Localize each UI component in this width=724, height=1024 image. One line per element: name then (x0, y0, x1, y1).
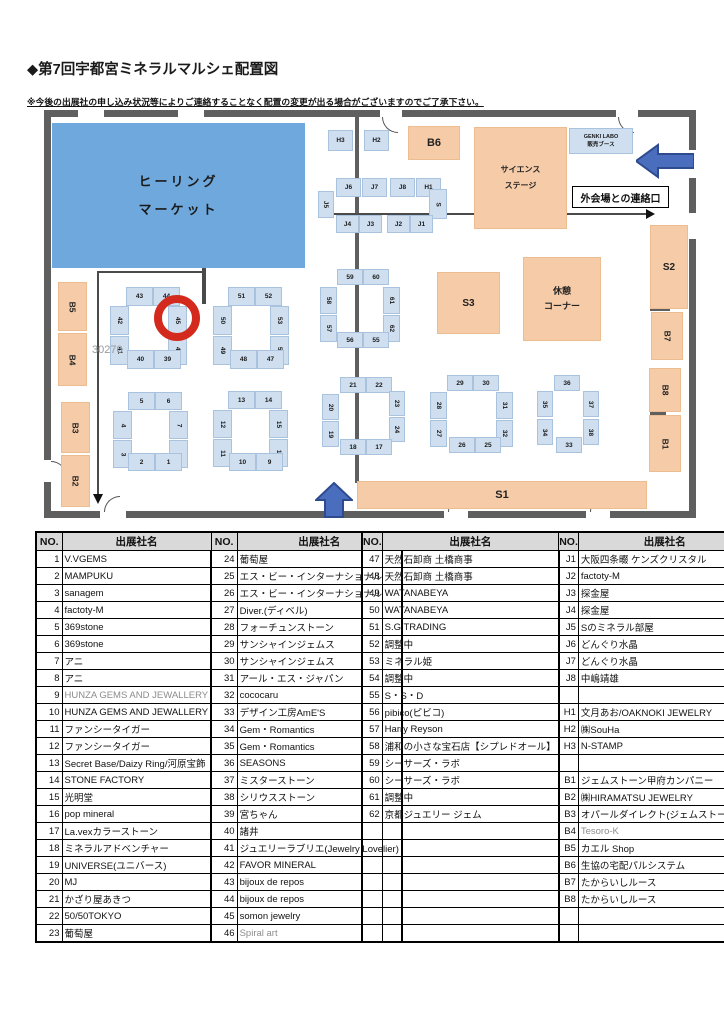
table-row: B7たからいしルース (362, 874, 724, 891)
exhibitor-name: 369stone (62, 619, 211, 636)
wall-center (355, 110, 359, 483)
exhibitor-no: B6 (559, 857, 579, 874)
booth-label: 56 (346, 337, 353, 344)
exhibitor-no: 47 (362, 551, 382, 568)
booth-label: 28 (435, 402, 442, 409)
booth-label: 57 (325, 325, 332, 332)
booth-2: 2 (128, 453, 155, 471)
exhibitor-no (362, 874, 382, 891)
exhibitor-no (362, 840, 382, 857)
exhibitor-name (382, 908, 559, 925)
booth-37: 37 (583, 391, 599, 417)
exhibitor-name: たからいしルース (578, 874, 724, 891)
exhibitor-name (382, 874, 559, 891)
exhibitor-name: 文月あお/OAKNOKI JEWELRY (578, 704, 724, 721)
table-row: 54調整中J8中嶋靖雄 (362, 670, 724, 687)
booth-label: 37 (587, 400, 594, 407)
table-row: 51S.G TRADINGJ5Sのミネラル部屋 (362, 619, 724, 636)
booth-61: 61 (383, 287, 400, 314)
exhibitor-name: ミネラル姫 (382, 653, 559, 670)
booth-label: 52 (265, 293, 272, 300)
booth-36: 36 (554, 375, 580, 391)
booth-48: 48 (230, 350, 257, 369)
exhibitor-no: 28 (211, 619, 237, 636)
booth-label: 39 (164, 356, 171, 363)
exhibitor-name: 中嶋靖雄 (578, 670, 724, 687)
wall-stub (202, 268, 206, 304)
booth-label: 29 (456, 380, 463, 387)
area-label: B2 (71, 476, 81, 487)
exhibitor-name: STONE FACTORY (62, 772, 211, 789)
booth-label: 15 (275, 420, 282, 427)
table-row (362, 908, 724, 925)
exhibitor-no: 19 (36, 857, 62, 874)
exhibitor-no: 52 (362, 636, 382, 653)
table-row: 11ファンシータイガー34Gem・Romantics (36, 721, 402, 738)
exhibitor-no: 37 (211, 772, 237, 789)
booth-label: 61 (388, 297, 395, 304)
exhibitor-no: J4 (559, 602, 579, 619)
wall-top (44, 110, 695, 117)
booth-34: 34 (537, 419, 553, 445)
booth-9: 9 (256, 453, 283, 471)
booth-label: J8 (399, 184, 406, 191)
booth-6: 6 (155, 392, 182, 410)
exhibitor-no: 2 (36, 568, 62, 585)
booth-label: H3 (336, 137, 344, 144)
exhibitor-no: 42 (211, 857, 237, 874)
exhibitor-name: オパールダイレクト(ジェムストーリー) (578, 806, 724, 823)
entrance-arrow-up-icon (315, 482, 353, 518)
exhibitor-name: 369stone (62, 636, 211, 653)
exhibitor-no (559, 687, 579, 704)
exhibitor-no: 61 (362, 789, 382, 806)
rest-corner: 休憩 コーナー (523, 257, 601, 341)
exhibitor-no: 9 (36, 687, 62, 704)
booth-label: J4 (344, 221, 351, 228)
exhibitor-name: WATANABEYA (382, 602, 559, 619)
booth-J4: J4 (336, 215, 359, 233)
exhibitor-name (382, 857, 559, 874)
booth-label: 60 (372, 274, 379, 281)
exhibitor-no: 6 (36, 636, 62, 653)
exhibitor-no: 46 (211, 925, 237, 943)
exhibitor-name (578, 925, 724, 943)
booth-1: 1 (155, 453, 182, 471)
table-row: 57Harry ReysonH2㈱SouHa (362, 721, 724, 738)
booth-label: 50 (219, 317, 226, 324)
flyer-page: ◆第7回宇都宮ミネラルマルシェ配置図 ※今後の出展社の申し込み状況等によりご連絡… (0, 0, 724, 1024)
exhibitor-no: B4 (559, 823, 579, 840)
exhibitor-no: H3 (559, 738, 579, 755)
exhibitor-name: sanagem (62, 585, 211, 602)
booth-H2: H2 (364, 130, 389, 151)
booth-47: 47 (257, 350, 284, 369)
booth-label: J6 (345, 184, 352, 191)
table-row: 16pop mineral39宮ちゃん (36, 806, 402, 823)
booth-label: 33 (565, 442, 572, 449)
table-row: 1V.VGEMS24葡萄屋 (36, 551, 402, 568)
booth-35: 35 (537, 391, 553, 417)
exhibitor-name: 調整中 (382, 670, 559, 687)
booth-4: 4 (113, 411, 132, 439)
table-row: 3sanagem26エス・ビー・インターナショナル (36, 585, 402, 602)
area-label: サイエンス ステージ (501, 162, 541, 194)
booth-19: 19 (322, 421, 339, 447)
exhibitor-no: J3 (559, 585, 579, 602)
area-B5: B5 (58, 282, 87, 331)
booth-label: 21 (349, 382, 356, 389)
table-row: 60シーサーズ・ラボB1ジェムストーン甲府カンパニー (362, 772, 724, 789)
exhibitor-name (382, 840, 559, 857)
booth-27: 27 (430, 420, 447, 447)
exhibitor-no: J1 (559, 551, 579, 568)
exit-connector-label: 外会場との連絡口 (572, 186, 669, 208)
booth-label: 34 (541, 428, 548, 435)
area-B1: B1 (649, 415, 681, 472)
exhibitor-name: ㈱HIRAMATSU JEWELRY (578, 789, 724, 806)
exhibitor-no: 18 (36, 840, 62, 857)
booth-10: 10 (229, 453, 256, 471)
col-header-no: NO. (559, 532, 579, 551)
exhibitor-no: 59 (362, 755, 382, 772)
booth-13: 13 (228, 391, 255, 409)
exhibitor-no: 25 (211, 568, 237, 585)
booth-label: 2 (140, 459, 144, 466)
exhibitor-name (382, 891, 559, 908)
booth-label: 47 (267, 356, 274, 363)
area-B3: B3 (61, 402, 90, 453)
exhibitor-name: Tesoro-K (578, 823, 724, 840)
exhibitor-name (578, 908, 724, 925)
exhibitor-name: ファンシータイガー (62, 721, 211, 738)
table-row: 52調整中J6どんぐり水晶 (362, 636, 724, 653)
booth-42: 42 (110, 306, 129, 335)
table-row: 53ミネラル姫J7どんぐり水晶 (362, 653, 724, 670)
booth-18: 18 (340, 439, 366, 455)
exhibitor-no (362, 823, 382, 840)
booth-28: 28 (430, 392, 447, 419)
exhibitor-name: N-STAMP (578, 738, 724, 755)
exhibitor-name: Secret Base/Daizy Ring/河原宝飾 (62, 755, 211, 772)
booth-31: 31 (496, 392, 513, 419)
table-row: B6生協の宅配パルシステム (362, 857, 724, 874)
booth-59: 59 (337, 269, 363, 285)
booth-60: 60 (363, 269, 389, 285)
booth-21: 21 (340, 377, 366, 393)
exhibitor-name: La.vexカラーストーン (62, 823, 211, 840)
booth-label: 58 (325, 297, 332, 304)
booth-J5: J5 (318, 191, 334, 218)
table-row: B5カエル Shop (362, 840, 724, 857)
exhibitor-no: 32 (211, 687, 237, 704)
booth-43: 43 (126, 287, 153, 306)
booth-52: 52 (255, 287, 282, 306)
area-S3: S3 (437, 272, 500, 334)
area-B4: B4 (58, 333, 87, 386)
booth-26: 26 (449, 437, 475, 453)
col-header-no: NO. (362, 532, 382, 551)
exhibitor-no: 16 (36, 806, 62, 823)
area-B2: B2 (61, 455, 90, 507)
booth-label: 36 (563, 380, 570, 387)
booth-51: 51 (228, 287, 255, 306)
booth-label: 53 (276, 317, 283, 324)
exhibitor-no: 57 (362, 721, 382, 738)
exhibitor-no: B2 (559, 789, 579, 806)
booth-53: 53 (270, 306, 289, 335)
area-B8: B8 (649, 368, 681, 412)
booth-label: 42 (116, 317, 123, 324)
booth-23: 23 (389, 391, 405, 416)
table-row: 61調整中B2㈱HIRAMATSU JEWELRY (362, 789, 724, 806)
exhibitor-name: pibico(ピビコ) (382, 704, 559, 721)
exhibitor-name: factoty-M (578, 568, 724, 585)
booth-J3: J3 (359, 215, 382, 233)
exhibitor-name: WATANABEYA (382, 585, 559, 602)
exhibitor-name (578, 755, 724, 772)
entrance-arrow-left-icon (636, 143, 694, 179)
exhibitor-no: 45 (211, 908, 237, 925)
booth-J1: J1 (410, 215, 433, 233)
exhibitor-no: J5 (559, 619, 579, 636)
table-row: 13Secret Base/Daizy Ring/河原宝飾36SEASONS (36, 755, 402, 772)
exhibitor-no: 3 (36, 585, 62, 602)
exhibitor-name: シーサーズ・ラボ (382, 772, 559, 789)
booth-label: 24 (393, 426, 400, 433)
exhibitor-name: MJ (62, 874, 211, 891)
exhibitor-no: H1 (559, 704, 579, 721)
table-row: 10HUNZA GEMS AND JEWALLERY33デザイン工房AmE'S (36, 704, 402, 721)
booth-label: 1 (167, 459, 171, 466)
table-row: B4Tesoro-K (362, 823, 724, 840)
area-label: S1 (495, 489, 508, 501)
booth-55: 55 (363, 332, 389, 348)
table-row: 8アニ31アール・エス・ジャパン (36, 670, 402, 687)
col-header-no: NO. (211, 532, 237, 551)
booth-label: 27 (435, 430, 442, 437)
exhibitor-no: 56 (362, 704, 382, 721)
table-row: 4factoty-M27Diver.(ディベル) (36, 602, 402, 619)
booth-56: 56 (337, 332, 363, 348)
booth-label: 10 (239, 459, 246, 466)
exhibitor-no: 27 (211, 602, 237, 619)
booth-J6: J6 (336, 178, 361, 197)
table-row: 15光明堂38シリウスストーン (36, 789, 402, 806)
route-arrowhead-down (93, 494, 103, 504)
exhibitor-no (362, 925, 382, 943)
exhibitor-no: 51 (362, 619, 382, 636)
exhibitor-no: 13 (36, 755, 62, 772)
table-row: 9HUNZA GEMS AND JEWALLERY32cococaru (36, 687, 402, 704)
table-row: 20MJ43bijoux de repos (36, 874, 402, 891)
area-S2: S2 (650, 225, 688, 309)
area-label: B8 (660, 385, 670, 396)
exhibitor-no: 31 (211, 670, 237, 687)
exhibitor-name: 光明堂 (62, 789, 211, 806)
table-row: 2MAMPUKU25エス・ビー・インターナショナル (36, 568, 402, 585)
area-label: B1 (660, 438, 670, 449)
exhibitor-name: S.G TRADING (382, 619, 559, 636)
exhibitor-name: アニ (62, 653, 211, 670)
table-row: 47天然石卸商 土橋商事J1大阪四条畷 ケンズクリスタル (362, 551, 724, 568)
booth-J7: J7 (362, 178, 387, 197)
table-row: 5369stone28フォーチュンストーン (36, 619, 402, 636)
exhibitor-name (382, 925, 559, 943)
exhibitor-name: 探金屋 (578, 602, 724, 619)
table-row: 62京都ジュエリー ジェムB3オパールダイレクト(ジェムストーリー) (362, 806, 724, 823)
science-stage: サイエンス ステージ (474, 127, 567, 229)
exhibitor-no: B8 (559, 891, 579, 908)
area-S1: S1 (357, 481, 647, 509)
healing-market-zone: ヒーリング マーケット (52, 123, 305, 268)
booth-J8: J8 (390, 178, 415, 197)
exhibitor-no (559, 755, 579, 772)
exhibitor-no: J7 (559, 653, 579, 670)
exhibitor-name: 大阪四条畷 ケンズクリスタル (578, 551, 724, 568)
booth-label: 30 (482, 380, 489, 387)
highlight-circle-booth-45 (154, 295, 200, 341)
col-header-name: 出展社名 (62, 532, 211, 551)
table-row: 23葡萄屋46Spiral art (36, 925, 402, 943)
area-label: S2 (663, 262, 675, 273)
exhibitor-no: 29 (211, 636, 237, 653)
exhibitor-no (559, 908, 579, 925)
booth-58: 58 (320, 287, 337, 314)
booth-label: 23 (393, 400, 400, 407)
booth-40: 40 (127, 350, 154, 369)
booth-label: 20 (327, 403, 334, 410)
exhibitor-name: HUNZA GEMS AND JEWALLERY (62, 704, 211, 721)
exhibitor-name: 調整中 (382, 789, 559, 806)
exhibitor-no: J8 (559, 670, 579, 687)
table-row (362, 925, 724, 943)
exhibitor-no (559, 925, 579, 943)
exhibitor-no: 36 (211, 755, 237, 772)
booth-38: 38 (583, 419, 599, 445)
exhibitor-name: MAMPUKU (62, 568, 211, 585)
booth-label: J7 (371, 184, 378, 191)
exhibitor-no: 12 (36, 738, 62, 755)
exhibitor-name (578, 687, 724, 704)
exhibitor-name: UNIVERSE(ユニバース) (62, 857, 211, 874)
booth-label: 13 (238, 397, 245, 404)
booth-label: 26 (458, 442, 465, 449)
genki-labo-booth: GENKI LABO 販売ブース (569, 128, 633, 154)
exhibitor-no (362, 857, 382, 874)
booth-label: H2 (372, 137, 380, 144)
table-row: 17La.vexカラーストーン40諸井 (36, 823, 402, 840)
exhibitor-no: 8 (36, 670, 62, 687)
booth-label: 49 (219, 347, 226, 354)
table-row: 7アニ30サンシャインジェムス (36, 653, 402, 670)
exhibitor-name: ミネラルアドベンチャー (62, 840, 211, 857)
booth-label: 5 (140, 398, 144, 405)
booth-20: 20 (322, 394, 339, 420)
exhibitor-name: S・S・D (382, 687, 559, 704)
exhibitor-no: 21 (36, 891, 62, 908)
exhibitor-no: 33 (211, 704, 237, 721)
exhibitor-name: かざり屋あきつ (62, 891, 211, 908)
exhibitor-no: 30 (211, 653, 237, 670)
booth-label: J5 (322, 201, 329, 208)
exhibitor-no: B5 (559, 840, 579, 857)
booth-label: 18 (349, 444, 356, 451)
exhibitor-no: 43 (211, 874, 237, 891)
booth-7: 7 (169, 411, 188, 439)
booth-label: 31 (501, 402, 508, 409)
col-header-no: NO. (36, 532, 62, 551)
exhibitor-no: 20 (36, 874, 62, 891)
booth-50: 50 (213, 306, 232, 335)
exhibitor-no: 7 (36, 653, 62, 670)
booth-39: 39 (154, 350, 181, 369)
exhibitor-name: どんぐり水晶 (578, 636, 724, 653)
exhibitor-no: 22 (36, 908, 62, 925)
table-row: B8たからいしルース (362, 891, 724, 908)
exhibitor-no: 10 (36, 704, 62, 721)
exhibitor-no: 50 (362, 602, 382, 619)
exhibitor-name: factoty-M (62, 602, 211, 619)
booth-label: 40 (137, 356, 144, 363)
booth-5: 5 (128, 392, 155, 410)
table-row: 14STONE FACTORY37ミスターストーン (36, 772, 402, 789)
exhibitor-no: J2 (559, 568, 579, 585)
route-arrowhead-right (646, 209, 655, 219)
booth-J2: J2 (387, 215, 410, 233)
exhibitor-name: Sのミネラル部屋 (578, 619, 724, 636)
booth-label: 38 (587, 428, 594, 435)
booth-label: J1 (418, 221, 425, 228)
booth-label: 11 (219, 450, 226, 457)
exhibitor-no: H2 (559, 721, 579, 738)
booth-label: 4 (119, 423, 126, 427)
area-label: 休憩 コーナー (544, 284, 580, 315)
exhibitor-name: アニ (62, 670, 211, 687)
exhibitor-no: 41 (211, 840, 237, 857)
table-row: 48天然石卸商 土橋商事J2factoty-M (362, 568, 724, 585)
booth-label: 9 (268, 459, 272, 466)
exhibitor-no: 54 (362, 670, 382, 687)
route-line-left (97, 271, 205, 273)
booth-30: 30 (473, 375, 499, 391)
booth-label: 62 (388, 325, 395, 332)
booth-25: 25 (475, 437, 501, 453)
exhibitor-no: 48 (362, 568, 382, 585)
exhibitor-no: 35 (211, 738, 237, 755)
table-row: 58浦和の小さな宝石店【シプレドオール】H3N-STAMP (362, 738, 724, 755)
area-label: B6 (427, 137, 441, 149)
booth-label: 14 (265, 397, 272, 404)
booth-label: 6 (167, 398, 171, 405)
exhibitor-name: ジェムストーン甲府カンパニー (578, 772, 724, 789)
booth-label: 12 (219, 420, 226, 427)
booth-label: 3 (119, 452, 126, 456)
booth-17: 17 (366, 439, 392, 455)
exhibitor-name: 葡萄屋 (62, 925, 211, 943)
booth-33: 33 (556, 437, 582, 453)
booth-label: 35 (541, 400, 548, 407)
table-row: 49WATANABEYAJ3探金屋 (362, 585, 724, 602)
exhibitor-no: 55 (362, 687, 382, 704)
area-label: B7 (662, 331, 672, 342)
table-row: 21かざり屋あきつ44bijoux de repos (36, 891, 402, 908)
booth-15: 15 (269, 410, 288, 438)
area-label: B4 (68, 354, 78, 365)
exhibitor-name: ㈱SouHa (578, 721, 724, 738)
exhibitor-name: シーサーズ・ラボ (382, 755, 559, 772)
exhibitor-no: 49 (362, 585, 382, 602)
